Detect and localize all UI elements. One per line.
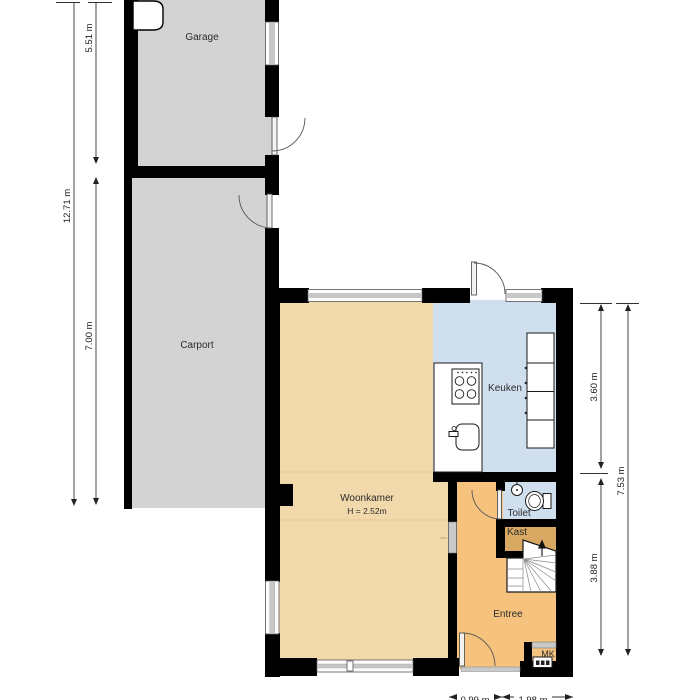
- svg-text:7.00 m: 7.00 m: [84, 321, 95, 350]
- svg-text:0.99 m: 0.99 m: [460, 695, 489, 700]
- dimension-kitchen-side: 3.60 m: [580, 304, 612, 474]
- label-garage: Garage: [185, 32, 219, 43]
- svg-text:3.88 m: 3.88 m: [589, 553, 600, 582]
- cooktop-icon: [452, 369, 479, 404]
- floor-plan: Garage Carport Woonkamer H = 2.52m Keuke…: [0, 0, 700, 700]
- window-top-kitchen: [506, 290, 542, 302]
- opening-mk: [532, 642, 556, 648]
- garage-cabinet: [133, 1, 163, 30]
- label-kast: Kast: [507, 527, 527, 538]
- window-top-living: [308, 290, 422, 302]
- label-carport: Carport: [180, 340, 214, 351]
- kitchen-cabinets: [525, 333, 554, 448]
- window-living-west: [266, 581, 280, 634]
- label-woonkamer: Woonkamer: [340, 493, 394, 504]
- dimension-bottom: 0.99 m 1.98 m: [449, 689, 573, 700]
- opening-living-hall: [449, 522, 457, 553]
- dimension-carport-depth: 7.00 m: [84, 177, 99, 505]
- window-garage-east: [266, 22, 279, 65]
- label-entree: Entree: [493, 609, 523, 620]
- dimension-garage-depth: 5.51 m: [84, 2, 112, 164]
- dimension-right-total: 7.53 m: [616, 304, 639, 657]
- room-woonkamer: [278, 300, 450, 660]
- dimension-entry-side: 3.88 m: [589, 478, 604, 656]
- svg-text:1.98 m: 1.98 m: [518, 695, 547, 700]
- window-bottom-living: [317, 660, 413, 672]
- floor-plan-page: Garage Carport Woonkamer H = 2.52m Keuke…: [0, 0, 700, 700]
- svg-text:5.51 m: 5.51 m: [84, 23, 95, 52]
- dimension-left-total: 12.71 m: [56, 2, 80, 506]
- label-toilet: Toilet: [507, 508, 531, 519]
- room-fills: [130, 0, 558, 669]
- label-height: H = 2.52m: [347, 506, 386, 516]
- svg-text:7.53 m: 7.53 m: [616, 466, 627, 495]
- threshold-front-door: [461, 667, 520, 672]
- label-mk: MK: [541, 649, 555, 659]
- door-kitchen-entry: [472, 262, 506, 295]
- svg-text:3.60 m: 3.60 m: [589, 372, 600, 401]
- door-garage: [272, 117, 305, 155]
- label-keuken: Keuken: [488, 383, 522, 394]
- svg-text:12.71 m: 12.71 m: [62, 189, 73, 223]
